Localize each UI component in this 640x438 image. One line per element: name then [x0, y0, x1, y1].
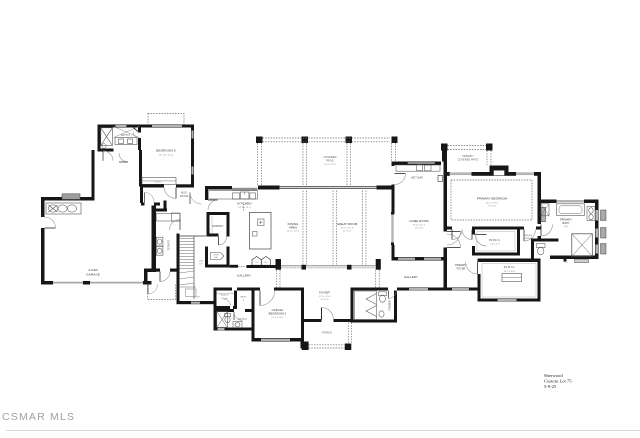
svg-text:PRIMARY: PRIMARY — [455, 264, 467, 267]
svg-text:16'-0 x 18'-0: 16'-0 x 18'-0 — [486, 202, 499, 204]
svg-text:15'-8 x 21'-0: 15'-8 x 21'-0 — [413, 224, 426, 226]
svg-text:12' CLG: 12' CLG — [488, 206, 496, 208]
svg-text:GALLERY: GALLERY — [404, 275, 418, 279]
svg-text:FOYER: FOYER — [319, 290, 329, 294]
svg-text:13'-10 x 12'-6: 13'-10 x 12'-6 — [159, 154, 174, 156]
svg-text:KITCHEN: KITCHEN — [237, 201, 251, 205]
svg-text:AREA: AREA — [289, 225, 297, 229]
svg-text:SERVICE: SERVICE — [168, 239, 171, 250]
svg-text:GAME ROOM: GAME ROOM — [409, 219, 429, 223]
svg-text:VEST.: VEST. — [240, 296, 247, 298]
svg-text:Custom Lot 75: Custom Lot 75 — [544, 379, 572, 384]
svg-text:PANTRY: PANTRY — [213, 224, 224, 228]
svg-text:9'-0 x 6'-0: 9'-0 x 6'-0 — [490, 244, 499, 246]
svg-text:BEDROOM 5: BEDROOM 5 — [156, 149, 176, 153]
svg-text:12'-0 x 13'-4: 12'-0 x 13'-4 — [271, 317, 284, 319]
svg-text:5-9-25: 5-9-25 — [544, 384, 557, 389]
svg-text:GALLERY: GALLERY — [237, 273, 251, 277]
svg-text:TECH: TECH — [213, 254, 219, 256]
svg-text:14'-0 x 13'-0: 14'-0 x 13'-0 — [287, 231, 300, 233]
svg-text:Walk-in: Walk-in — [221, 295, 230, 297]
svg-text:CSMAR MLS: CSMAR MLS — [2, 411, 75, 423]
svg-text:14'-8 x 21'-4: 14'-8 x 21'-4 — [238, 207, 251, 209]
svg-text:12'-0 x 8'-0: 12'-0 x 8'-0 — [319, 296, 331, 298]
svg-text:GARAGE: GARAGE — [86, 272, 100, 276]
svg-text:POWDER: POWDER — [390, 300, 392, 311]
svg-text:14' CLG: 14' CLG — [321, 299, 329, 301]
svg-text:FOYER: FOYER — [457, 268, 466, 271]
svg-text:PATIO: PATIO — [326, 160, 334, 163]
svg-text:16R: 16R — [199, 261, 203, 263]
svg-text:44'-0 x 10'-0: 44'-0 x 10'-0 — [324, 164, 336, 166]
svg-text:12' CLG: 12' CLG — [343, 230, 351, 232]
svg-text:ROOM: ROOM — [180, 195, 188, 198]
svg-text:WO: WO — [264, 262, 268, 264]
svg-text:P2 W.I.C.: P2 W.I.C. — [489, 239, 501, 242]
svg-text:PRIMARY BEDROOM: PRIMARY BEDROOM — [477, 197, 508, 201]
svg-text:Sherwood: Sherwood — [544, 373, 563, 378]
svg-text:BATH 5: BATH 5 — [121, 134, 131, 137]
svg-text:WET BAR: WET BAR — [411, 176, 423, 179]
svg-text:24'-0 x 19'-2: 24'-0 x 19'-2 — [341, 227, 354, 229]
svg-text:6'-0: 6'-0 — [564, 262, 567, 264]
svg-text:Closet: Closet — [221, 297, 228, 300]
svg-text:GREAT ROOM: GREAT ROOM — [337, 222, 358, 226]
svg-text:BATH: BATH — [563, 222, 570, 225]
svg-text:PORCH: PORCH — [322, 331, 332, 335]
svg-text:16'-0: 16'-0 — [564, 226, 569, 228]
svg-text:CLOS.: CLOS. — [154, 182, 161, 184]
svg-text:DRESS: DRESS — [524, 235, 532, 237]
svg-text:BEDROOM 2: BEDROOM 2 — [269, 312, 287, 316]
svg-text:COVERED PATIO: COVERED PATIO — [458, 158, 479, 161]
svg-text:13'-0 x 10'-0: 13'-0 x 10'-0 — [504, 271, 516, 273]
svg-text:12' CLG: 12' CLG — [415, 227, 423, 229]
svg-text:RM: RM — [214, 257, 217, 259]
svg-text:P1 W.I.C.: P1 W.I.C. — [504, 266, 516, 269]
svg-text:VEST: VEST — [525, 238, 532, 240]
svg-text:BATH 2: BATH 2 — [238, 318, 247, 321]
